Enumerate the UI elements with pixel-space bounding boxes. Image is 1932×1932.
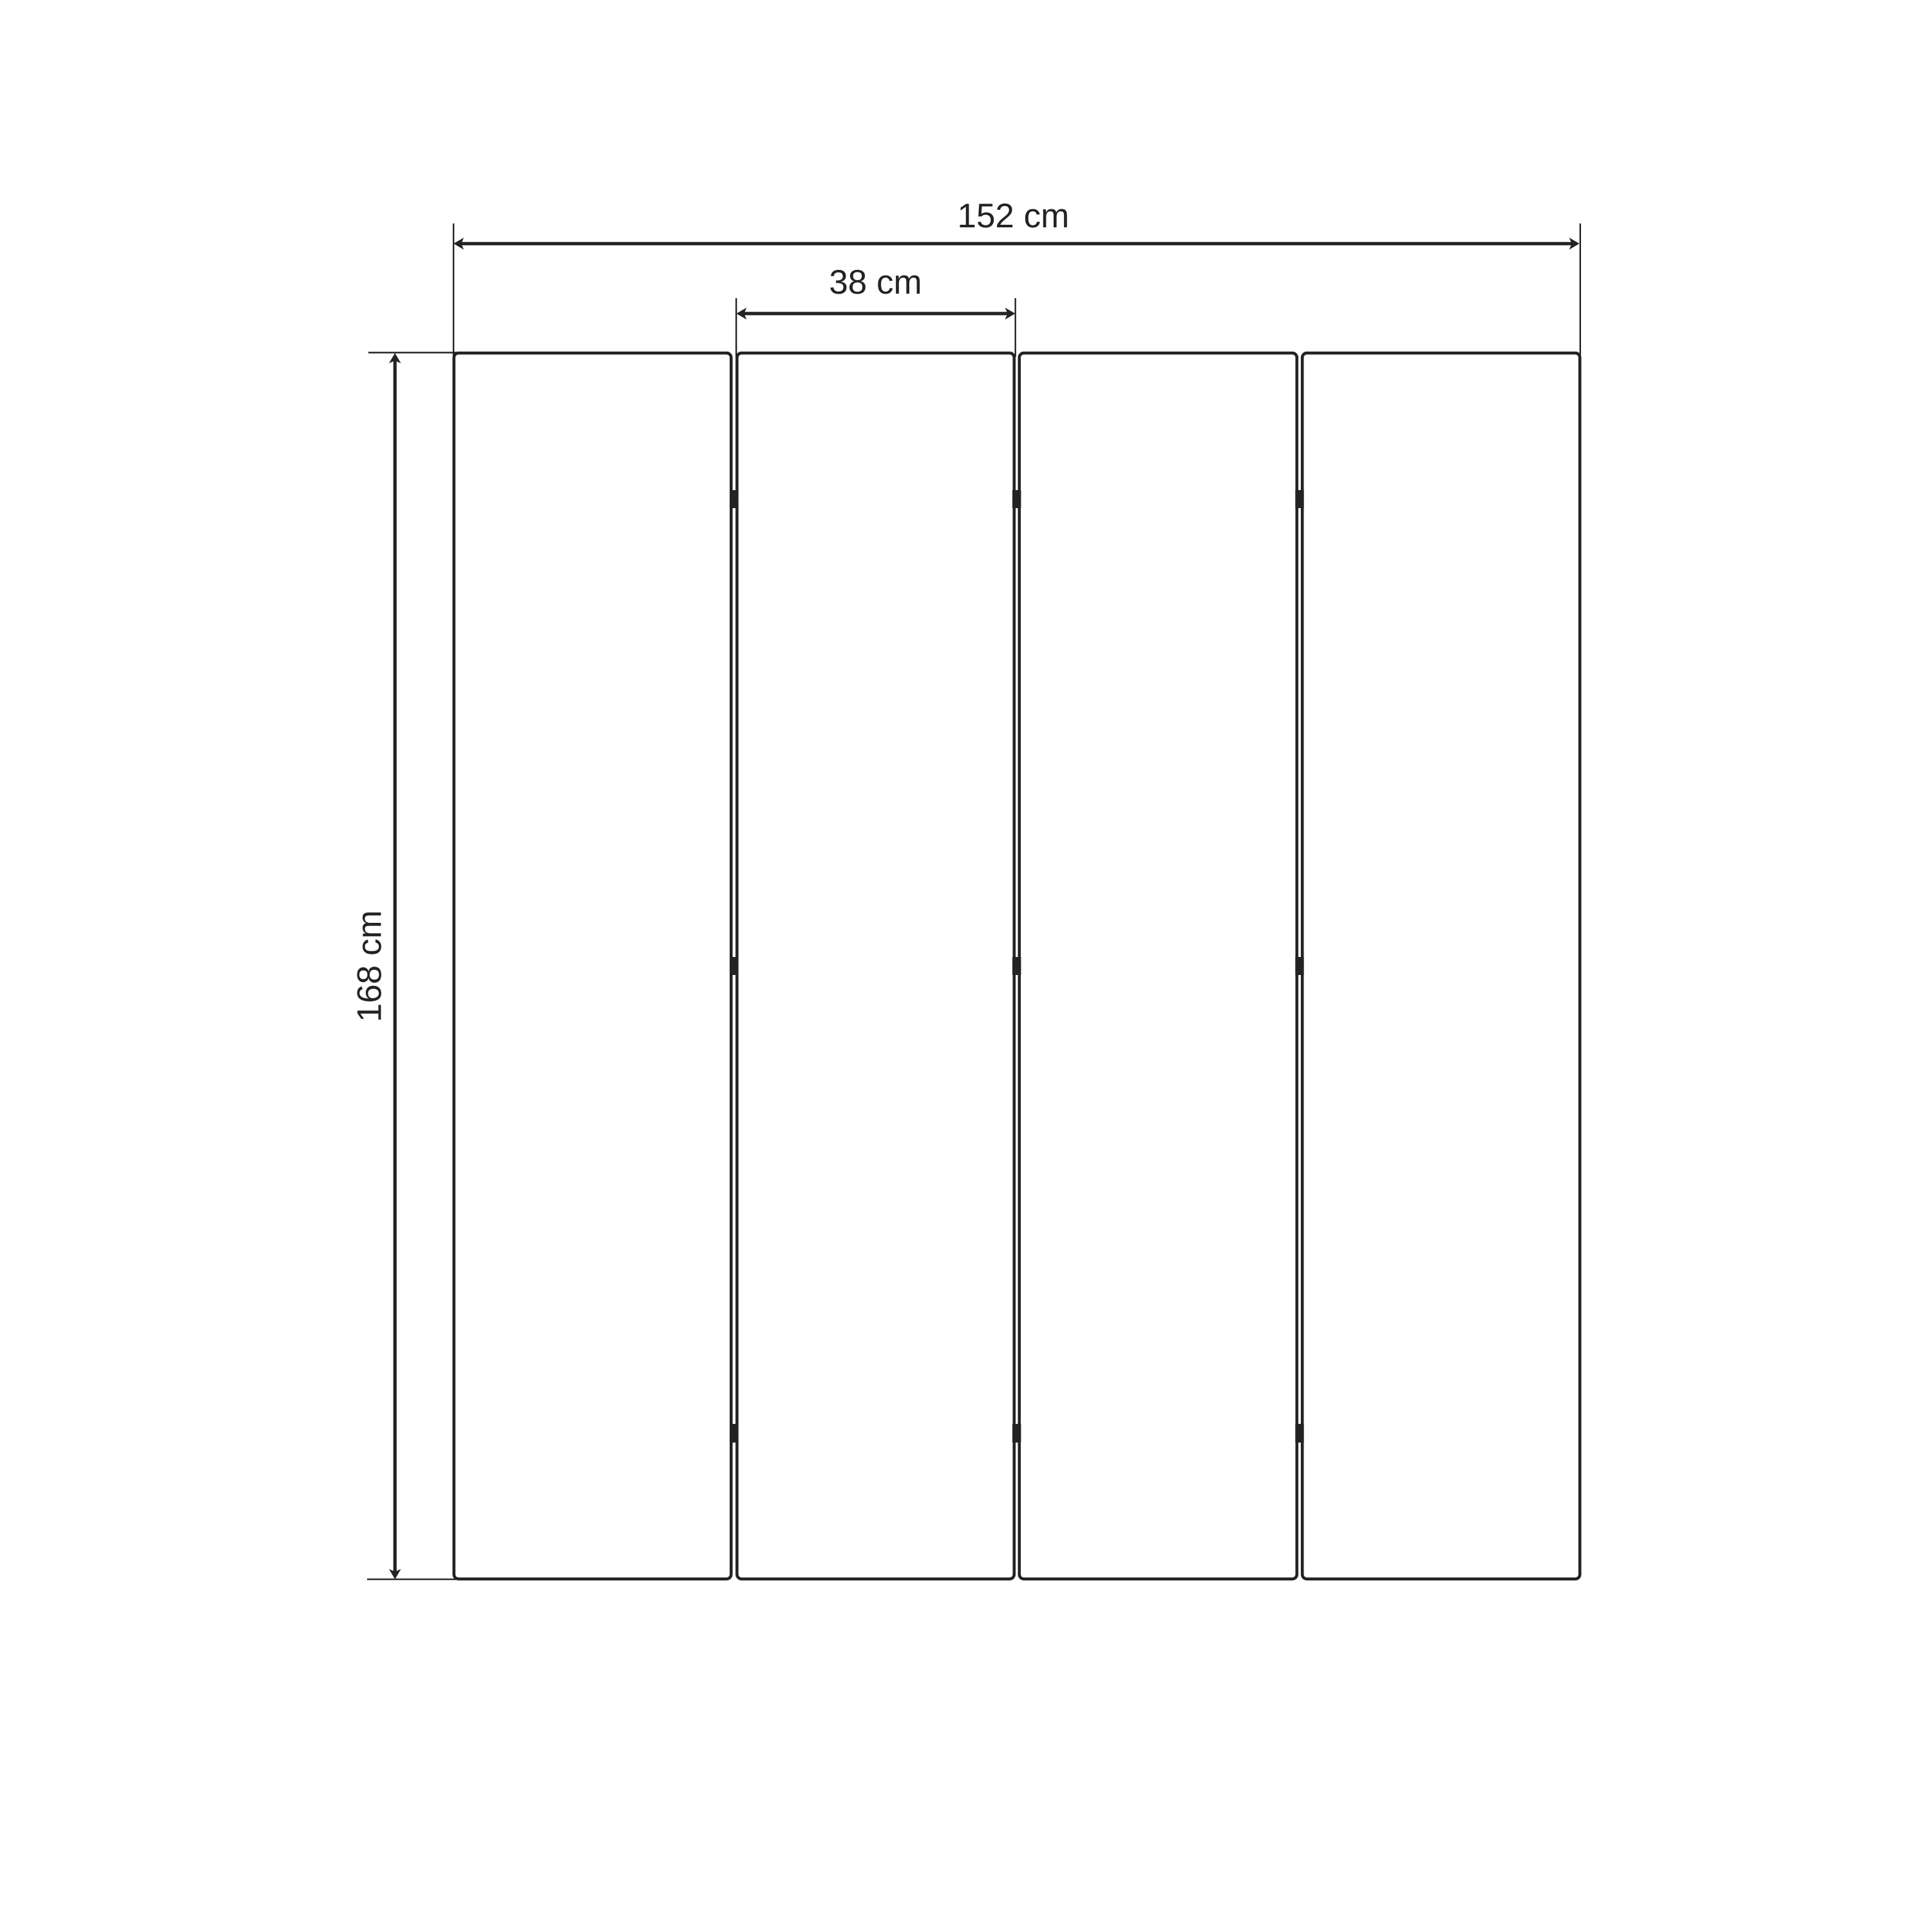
svg-text:152 cm: 152 cm — [957, 197, 1069, 235]
svg-text:168 cm: 168 cm — [351, 910, 389, 1022]
svg-text:38 cm: 38 cm — [829, 263, 922, 301]
